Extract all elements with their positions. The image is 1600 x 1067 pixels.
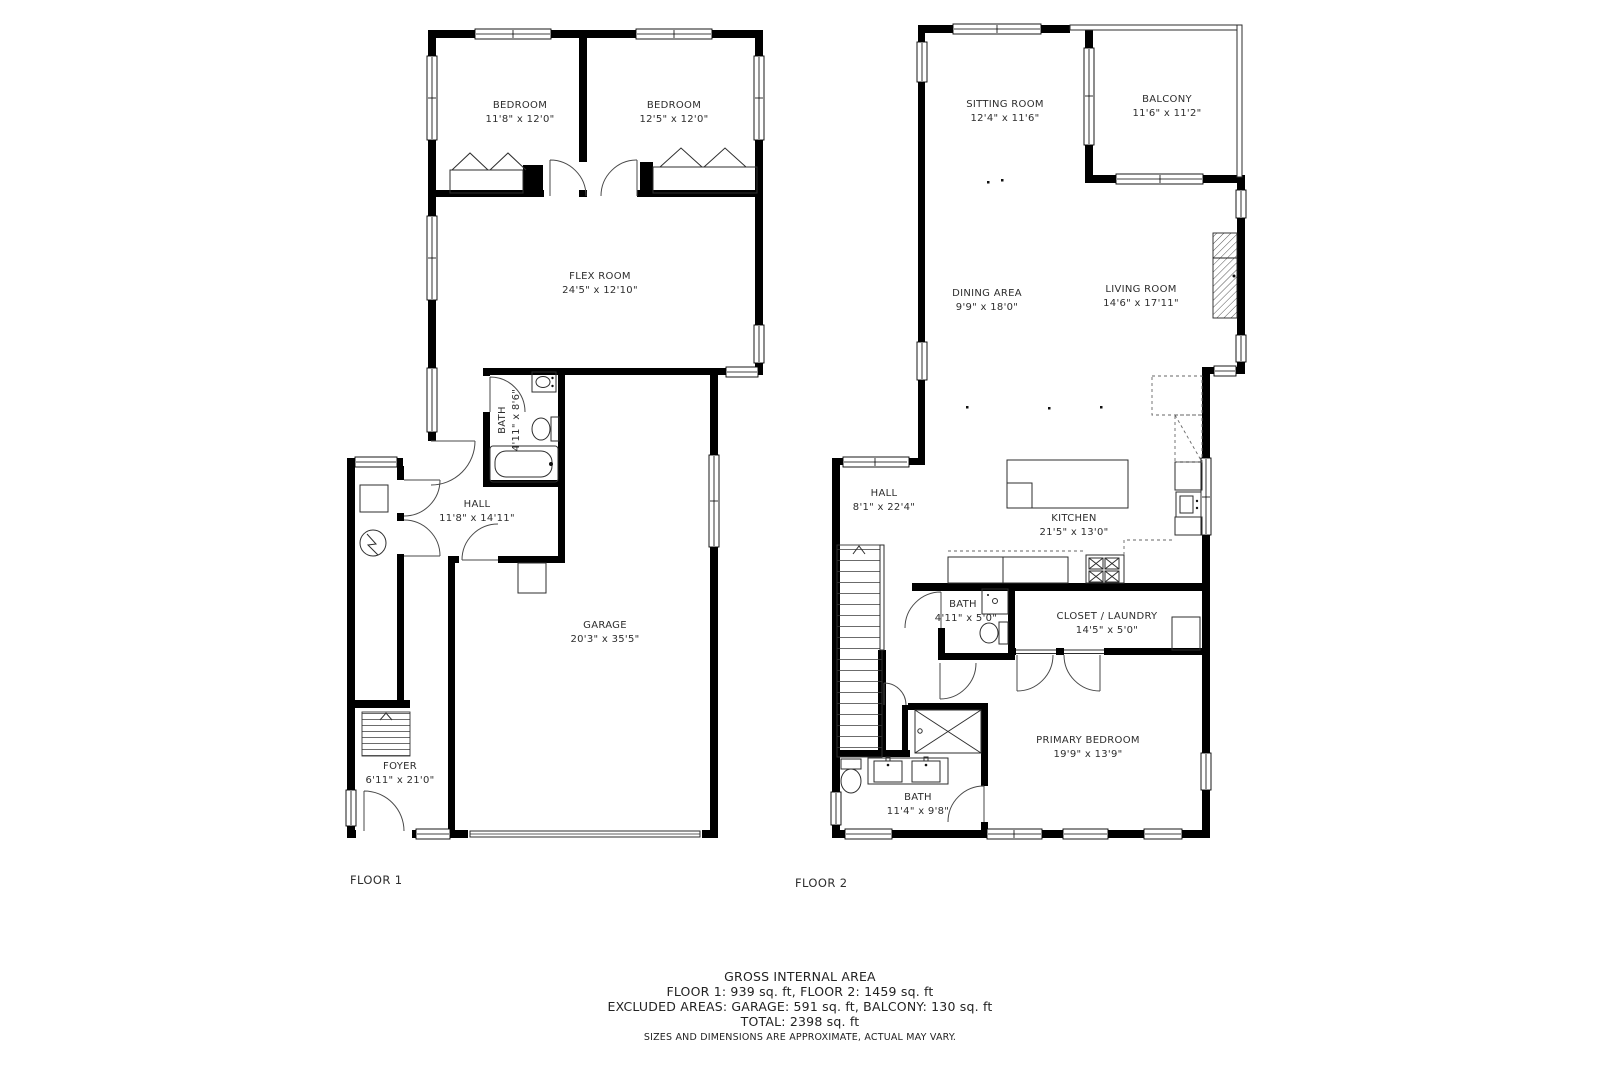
svg-text:8'1" x 22'4": 8'1" x 22'4" <box>853 502 915 513</box>
room-label-flex: FLEX ROOM 24'5" x 12'10" <box>562 271 638 296</box>
svg-text:14'6" x 17'11": 14'6" x 17'11" <box>1103 298 1179 309</box>
svg-text:20'3" x 35'5": 20'3" x 35'5" <box>570 634 639 645</box>
cabinet <box>360 485 388 512</box>
svg-text:PRIMARY BEDROOM: PRIMARY BEDROOM <box>1036 735 1140 746</box>
svg-text:HALL: HALL <box>871 488 898 499</box>
svg-text:4'11" x 8'6": 4'11" x 8'6" <box>511 389 522 451</box>
room-label-kitchen: KITCHEN 21'5" x 13'0" <box>1039 513 1108 538</box>
bedroom-closets <box>450 148 757 193</box>
svg-text:BEDROOM: BEDROOM <box>647 100 701 111</box>
counter <box>1175 462 1202 490</box>
svg-text:FLEX ROOM: FLEX ROOM <box>569 271 631 282</box>
kitchen-sink-icon <box>1176 492 1201 517</box>
counter <box>1003 557 1068 583</box>
garage-door <box>470 831 700 837</box>
svg-text:19'9" x 13'9": 19'9" x 13'9" <box>1053 749 1122 760</box>
room-label-bedroom2: BEDROOM 12'5" x 12'0" <box>639 100 708 125</box>
summary-total: TOTAL: 2398 sq. ft <box>740 1014 860 1029</box>
svg-text:HALL: HALL <box>464 499 491 510</box>
floor2-plan: SITTING ROOM 12'4" x 11'6" BALCONY 11'6"… <box>795 24 1246 890</box>
shower-small-icon <box>982 589 1008 614</box>
room-label-bath1: BATH 4'11" x 8'6" <box>497 389 522 451</box>
counter <box>948 557 1003 583</box>
svg-text:DINING AREA: DINING AREA <box>952 288 1022 299</box>
floor1-label: FLOOR 1 <box>350 873 402 887</box>
svg-text:BALCONY: BALCONY <box>1142 94 1192 105</box>
toilet-icon <box>980 622 1008 644</box>
room-label-dining: DINING AREA 9'9" x 18'0" <box>952 288 1022 313</box>
svg-text:CLOSET / LAUNDRY: CLOSET / LAUNDRY <box>1057 611 1159 622</box>
svg-text:BEDROOM: BEDROOM <box>493 100 547 111</box>
room-label-garage: GARAGE 20'3" x 35'5" <box>570 620 639 645</box>
svg-text:BATH: BATH <box>949 599 977 610</box>
room-label-balcony: BALCONY 11'6" x 11'2" <box>1132 94 1201 119</box>
kitchen-island <box>1007 460 1128 508</box>
svg-text:11'8" x 12'0": 11'8" x 12'0" <box>485 114 554 125</box>
kitchen-fixtures <box>948 376 1202 583</box>
room-label-sitting: SITTING ROOM 12'4" x 11'6" <box>966 99 1044 124</box>
room-label-primary-bedroom: PRIMARY BEDROOM 19'9" x 13'9" <box>1036 735 1140 760</box>
svg-text:GARAGE: GARAGE <box>583 620 627 631</box>
svg-text:6'11" x 21'0": 6'11" x 21'0" <box>365 775 434 786</box>
double-vanity <box>868 757 948 784</box>
svg-text:12'5" x 12'0": 12'5" x 12'0" <box>639 114 708 125</box>
summary-floors: FLOOR 1: 939 sq. ft, FLOOR 2: 1459 sq. f… <box>666 984 933 999</box>
floor1-stairs <box>362 712 410 756</box>
counter <box>1175 517 1202 535</box>
svg-text:BATH: BATH <box>904 792 932 803</box>
svg-text:FOYER: FOYER <box>383 761 417 772</box>
area-summary: GROSS INTERNAL AREA FLOOR 1: 939 sq. ft,… <box>608 969 993 1043</box>
room-label-hall2: HALL 8'1" x 22'4" <box>853 488 915 513</box>
floor2-label: FLOOR 2 <box>795 876 847 890</box>
svg-text:11'4" x 9'8": 11'4" x 9'8" <box>887 806 949 817</box>
svg-text:9'9" x 18'0": 9'9" x 18'0" <box>956 302 1018 313</box>
floorplan-page: BEDROOM 11'8" x 12'0" BEDROOM 12'5" x 12… <box>0 0 1600 1067</box>
water-heater <box>518 563 546 593</box>
room-label-closet-laundry: CLOSET / LAUNDRY 14'5" x 5'0" <box>1057 611 1159 636</box>
toilet-icon <box>841 759 861 793</box>
electric-meter-icon <box>360 530 386 556</box>
floor2-stairs <box>837 545 884 757</box>
room-label-foyer: FOYER 6'11" x 21'0" <box>365 761 434 786</box>
bathtub-icon <box>490 446 558 482</box>
svg-text:KITCHEN: KITCHEN <box>1051 513 1096 524</box>
summary-title: GROSS INTERNAL AREA <box>724 969 876 984</box>
floorplan-canvas: BEDROOM 11'8" x 12'0" BEDROOM 12'5" x 12… <box>0 0 1600 1067</box>
summary-disclaimer: SIZES AND DIMENSIONS ARE APPROXIMATE, AC… <box>644 1032 956 1043</box>
svg-text:14'5" x 5'0": 14'5" x 5'0" <box>1076 625 1138 636</box>
svg-text:SITTING ROOM: SITTING ROOM <box>966 99 1044 110</box>
room-label-bath-primary: BATH 11'4" x 9'8" <box>887 792 949 817</box>
room-label-hall1: HALL 11'8" x 14'11" <box>439 499 515 524</box>
laundry-unit <box>1172 617 1200 650</box>
shower-icon <box>915 710 981 753</box>
fireplace <box>1213 233 1237 318</box>
svg-text:LIVING ROOM: LIVING ROOM <box>1105 284 1176 295</box>
svg-text:4'11" x 5'0": 4'11" x 5'0" <box>935 613 997 624</box>
floor2-windows <box>831 24 1246 839</box>
svg-text:BATH: BATH <box>497 406 508 434</box>
svg-text:21'5" x 13'0": 21'5" x 13'0" <box>1039 527 1108 538</box>
svg-text:24'5" x 12'10": 24'5" x 12'10" <box>562 285 638 296</box>
toilet-icon <box>532 417 559 441</box>
summary-excluded: EXCLUDED AREAS: GARAGE: 591 sq. ft, BALC… <box>608 999 993 1014</box>
stove-icon <box>1086 555 1124 583</box>
svg-text:12'4" x 11'6": 12'4" x 11'6" <box>970 113 1039 124</box>
floor1-plan: BEDROOM 11'8" x 12'0" BEDROOM 12'5" x 12… <box>346 29 764 887</box>
room-label-bedroom1: BEDROOM 11'8" x 12'0" <box>485 100 554 125</box>
svg-text:11'8" x 14'11": 11'8" x 14'11" <box>439 513 515 524</box>
svg-text:11'6" x 11'2": 11'6" x 11'2" <box>1132 108 1201 119</box>
room-label-living: LIVING ROOM 14'6" x 17'11" <box>1103 284 1179 309</box>
floor2-walls <box>832 25 1245 838</box>
